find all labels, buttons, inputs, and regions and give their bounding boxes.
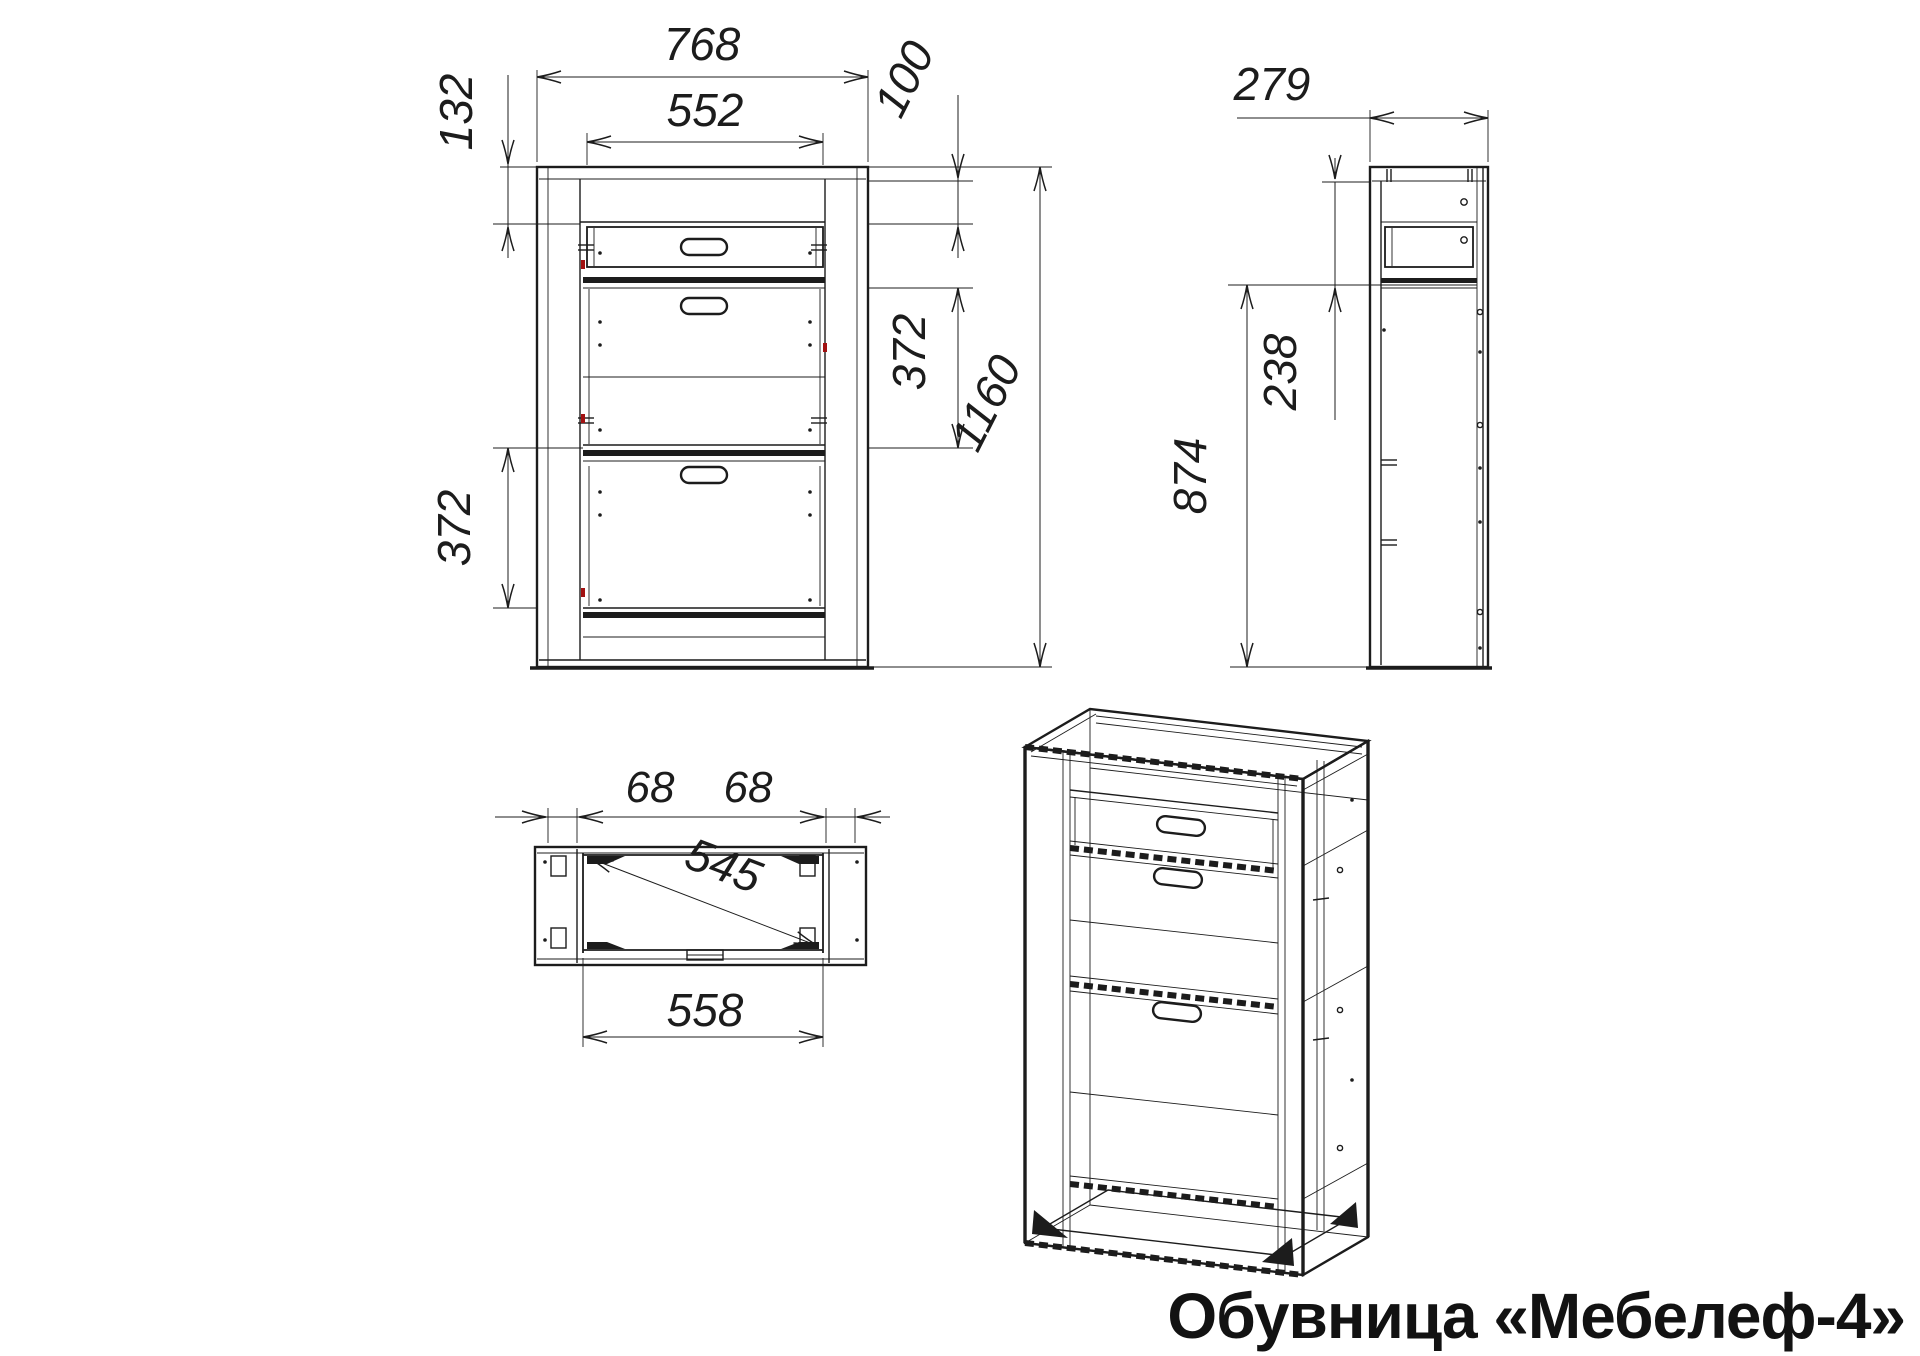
shoe-cabinet-blueprint: 768 552 132 100 372 1160 372: [0, 0, 1920, 1356]
page-title: Обувница «Мебелеф-4»: [1167, 1280, 1905, 1352]
iso-base: [1032, 1190, 1358, 1266]
accent-mark: [581, 588, 585, 597]
dim-label-inner-width: 552: [667, 84, 744, 136]
dim-label-upper-flap-height: 372: [883, 314, 935, 391]
front-flap-upper: [583, 289, 825, 461]
dim-label-inner-diagonal: 545: [679, 827, 770, 903]
lower-flap-handle-icon: [681, 467, 727, 483]
side-view: 279 238 874: [1164, 58, 1492, 668]
dim-label-top-section-height: 238: [1254, 333, 1306, 411]
dim-label-drawer-opening: 100: [863, 32, 944, 124]
dim-label-lower-flap-height: 372: [428, 490, 480, 567]
isometric-view: [1025, 709, 1368, 1275]
dim-label-overall-width: 768: [664, 18, 741, 70]
side-dimensions: 279 238 874: [1164, 58, 1488, 667]
upper-flap-handle-icon: [681, 298, 727, 314]
technical-drawing-page: 768 552 132 100 372 1160 372: [0, 0, 1920, 1356]
side-cabinet-outline: [1366, 167, 1492, 668]
side-fitting-marks: [1381, 169, 1483, 650]
front-flap-lower: [583, 466, 825, 637]
accent-mark: [581, 414, 585, 423]
dim-label-bottom-inner-width: 558: [667, 984, 744, 1036]
dim-label-overall-height: 1160: [940, 346, 1031, 458]
top-view: 68 68 545 558: [495, 763, 890, 1047]
dim-label-right-panel: 68: [724, 763, 773, 812]
iso-right-face: [1303, 754, 1368, 1231]
dim-label-lower-section-height: 874: [1164, 438, 1216, 515]
iso-front-face: [1063, 751, 1285, 1273]
accent-mark: [581, 260, 585, 269]
accent-mark: [823, 343, 827, 352]
dim-label-left-panel: 68: [626, 763, 675, 812]
top-dimensions: 68 68 545 558: [495, 763, 890, 1047]
front-view: 768 552 132 100 372 1160 372: [428, 18, 1052, 668]
front-dimensions: 768 552 132 100 372 1160 372: [428, 18, 1052, 667]
iso-upper-flap-handle-icon: [1153, 867, 1203, 888]
dim-label-overall-depth: 279: [1233, 58, 1311, 110]
iso-drawer-handle-icon: [1156, 815, 1206, 836]
front-shelf-band-1: [583, 277, 825, 288]
front-drawer: [587, 227, 823, 267]
dim-label-top-rail-height: 132: [430, 74, 482, 151]
drawer-handle-icon: [681, 239, 727, 255]
